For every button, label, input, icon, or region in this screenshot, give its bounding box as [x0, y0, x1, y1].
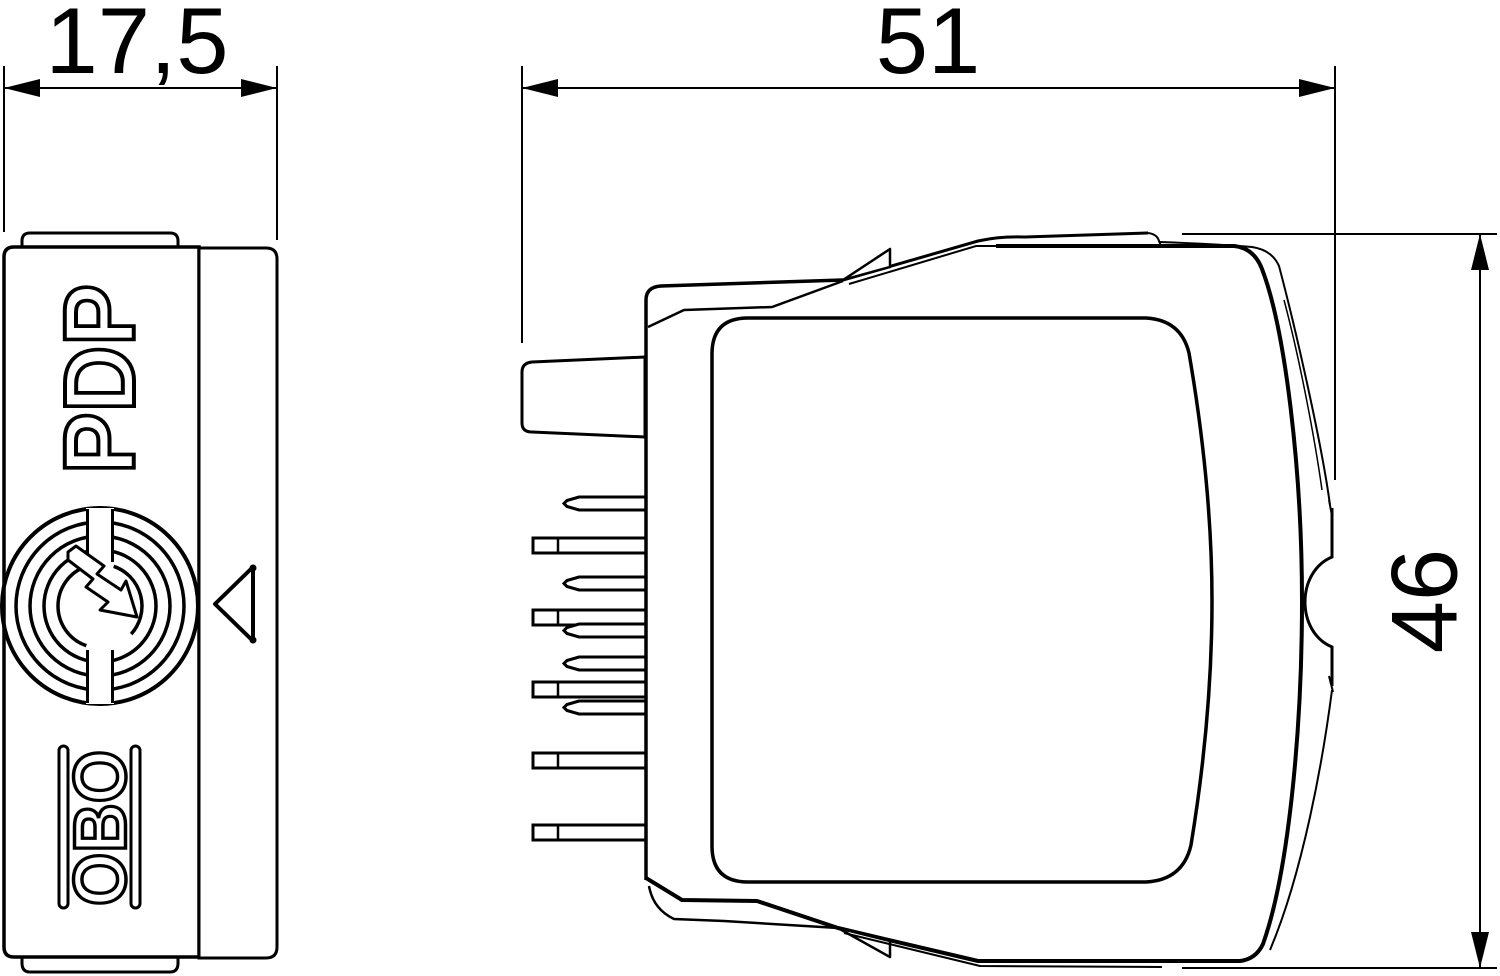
side-view — [522, 233, 1333, 967]
side-module-face — [712, 318, 1212, 882]
dim-label-side-height: 46 — [1372, 549, 1477, 654]
arrowhead-right — [1299, 79, 1335, 97]
plug-connector — [522, 357, 645, 437]
arrowhead-top — [1471, 234, 1489, 270]
clip-lever-top — [843, 249, 890, 280]
brand-logo: OBO — [59, 746, 142, 908]
front-view: PDP OBO — [2, 233, 277, 972]
arrowhead-left — [4, 79, 40, 97]
dim-label-front-width: 17,5 — [46, 0, 229, 93]
arrowhead-left — [522, 79, 558, 97]
dim-label-side-width: 51 — [876, 0, 981, 93]
product-label: PDP — [44, 284, 156, 474]
arrowhead-bottom — [1471, 932, 1489, 968]
dimension-side-height: 46 — [1182, 234, 1497, 968]
technical-drawing: PDP OBO — [0, 0, 1500, 976]
dimension-front-width: 17,5 — [4, 0, 277, 240]
brand-label: OBO — [59, 750, 142, 906]
connection-pins — [533, 497, 645, 840]
arrowhead-right — [241, 79, 277, 97]
